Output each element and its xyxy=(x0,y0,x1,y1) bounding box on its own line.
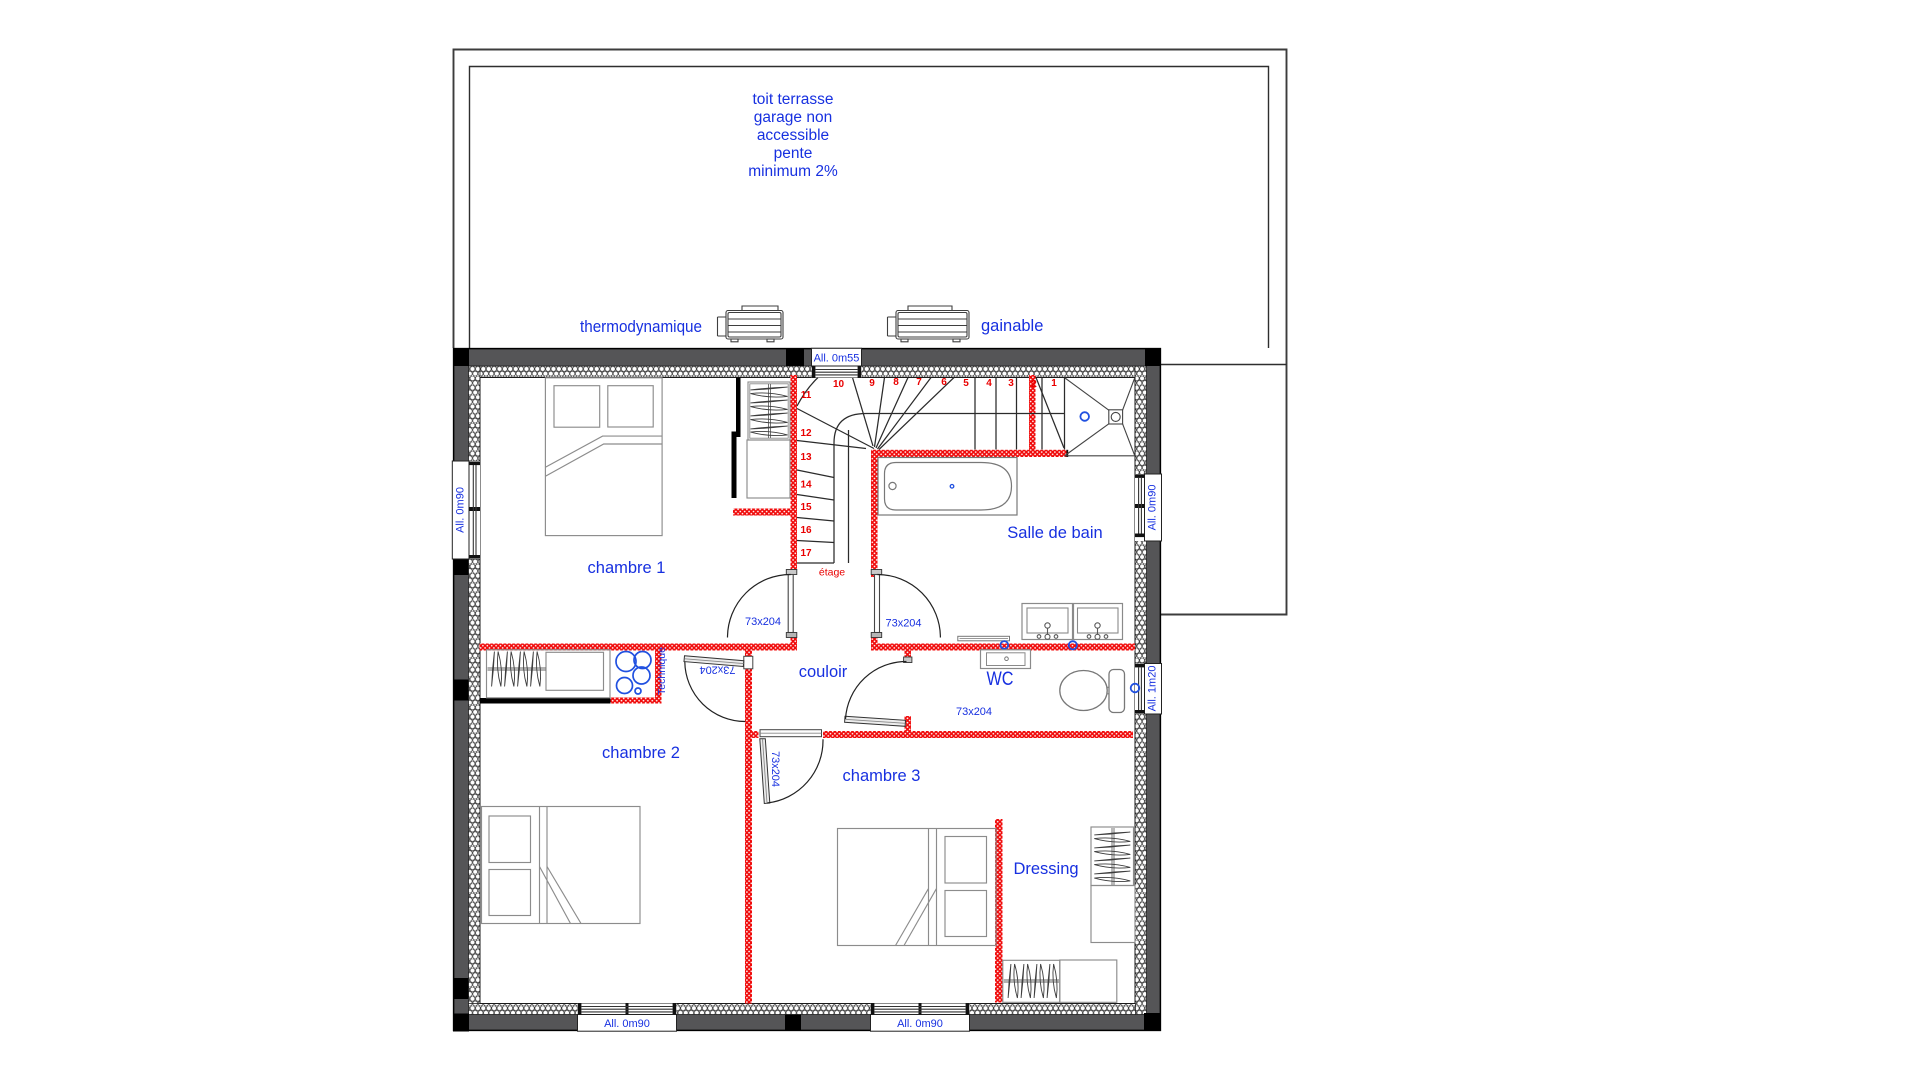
svg-text:73x204: 73x204 xyxy=(885,618,921,630)
svg-text:73x204: 73x204 xyxy=(745,616,781,628)
svg-text:10: 10 xyxy=(833,379,845,390)
svg-text:8: 8 xyxy=(893,377,899,388)
svg-text:14: 14 xyxy=(800,480,812,491)
svg-text:16: 16 xyxy=(800,525,812,536)
svg-text:Salle de bain: Salle de bain xyxy=(1007,524,1102,542)
svg-text:All. 0m90: All. 0m90 xyxy=(1147,485,1159,531)
svg-text:12: 12 xyxy=(800,428,812,439)
svg-text:Dressing: Dressing xyxy=(1013,860,1078,878)
svg-text:accessible: accessible xyxy=(757,127,829,144)
svg-text:chambre 1: chambre 1 xyxy=(588,559,666,577)
svg-text:5: 5 xyxy=(963,378,969,389)
svg-text:All. 1m20: All. 1m20 xyxy=(1147,666,1159,712)
svg-text:gainable: gainable xyxy=(981,317,1043,335)
svg-text:73x204: 73x204 xyxy=(769,751,781,787)
svg-text:chambre 2: chambre 2 xyxy=(602,744,680,762)
svg-text:17: 17 xyxy=(800,548,812,559)
svg-text:pente: pente xyxy=(774,145,813,162)
svg-text:2: 2 xyxy=(1031,379,1037,390)
svg-text:All. 0m90: All. 0m90 xyxy=(604,1018,650,1030)
svg-text:4: 4 xyxy=(986,378,992,389)
svg-text:9: 9 xyxy=(869,378,875,389)
svg-text:1: 1 xyxy=(1051,378,1057,389)
svg-text:15: 15 xyxy=(800,502,812,513)
svg-text:6: 6 xyxy=(941,377,947,388)
svg-text:7: 7 xyxy=(916,377,922,388)
svg-text:couloir: couloir xyxy=(799,663,848,681)
svg-text:13: 13 xyxy=(800,452,812,463)
svg-text:garage non: garage non xyxy=(754,109,832,126)
svg-text:thermodynamique: thermodynamique xyxy=(580,318,702,336)
svg-text:All. 0m90: All. 0m90 xyxy=(455,487,467,533)
svg-text:73x204: 73x204 xyxy=(699,664,735,676)
svg-text:toit terrasse: toit terrasse xyxy=(753,91,834,108)
svg-text:All. 0m55: All. 0m55 xyxy=(814,353,860,365)
svg-text:Technique: Technique xyxy=(656,647,668,695)
svg-text:11: 11 xyxy=(801,390,812,401)
svg-text:WC: WC xyxy=(987,669,1014,690)
svg-text:étage: étage xyxy=(819,567,845,579)
svg-text:minimum 2%: minimum 2% xyxy=(748,163,838,180)
svg-text:3: 3 xyxy=(1008,378,1014,389)
svg-text:chambre 3: chambre 3 xyxy=(843,767,921,785)
svg-text:All. 0m90: All. 0m90 xyxy=(897,1018,943,1030)
svg-text:73x204: 73x204 xyxy=(956,706,992,718)
